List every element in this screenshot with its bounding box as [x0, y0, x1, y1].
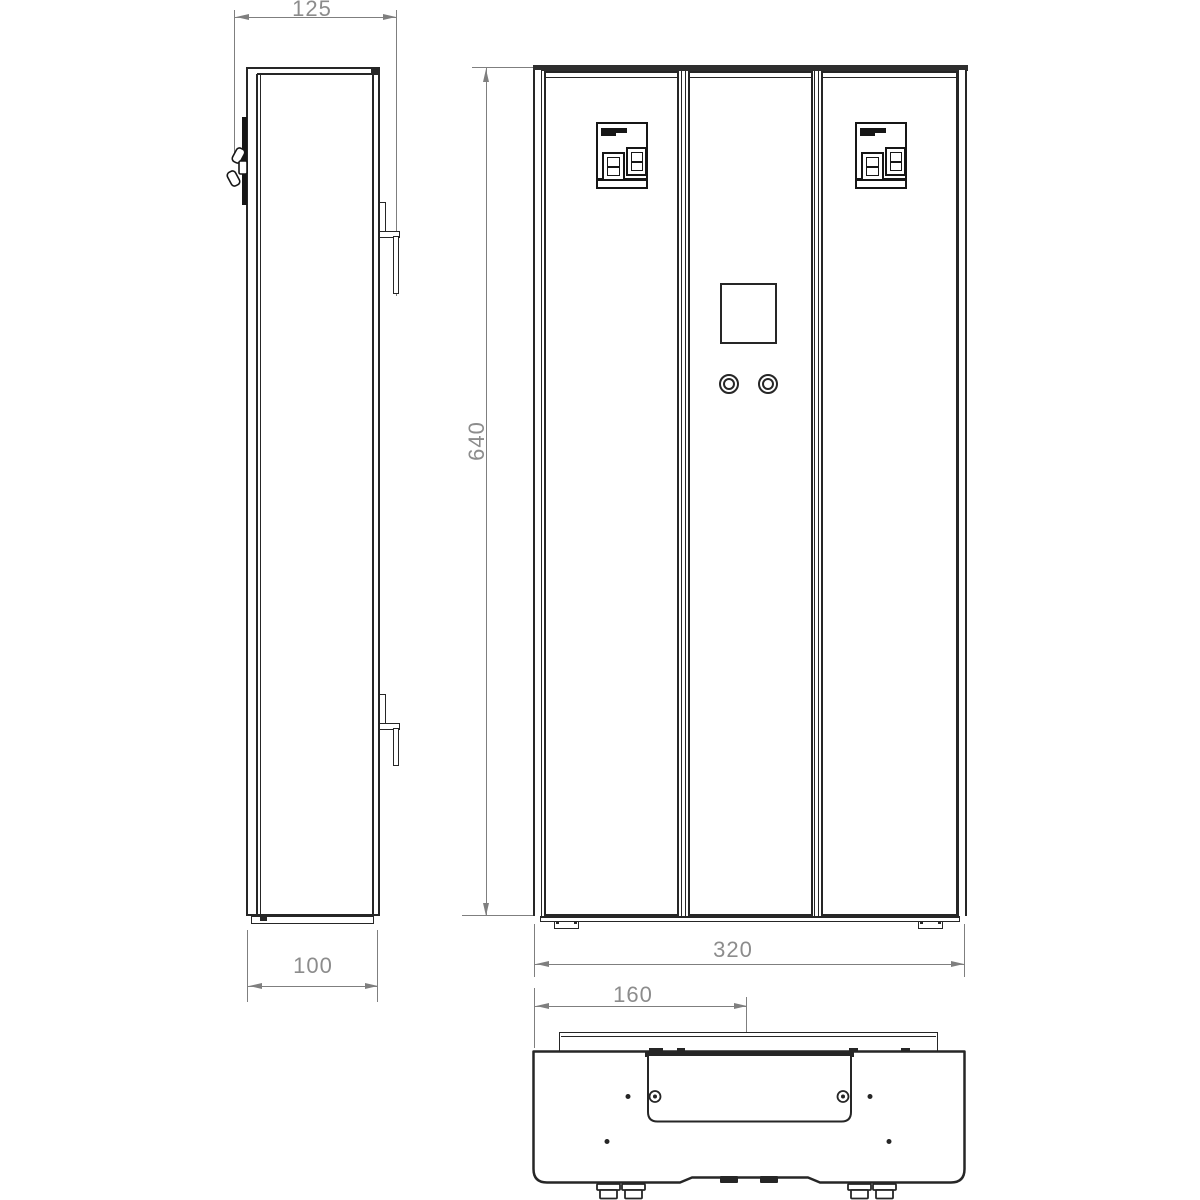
dimension-label-width: 320 — [703, 939, 763, 961]
pilot-hole — [887, 1139, 892, 1144]
pilot-hole — [868, 1094, 873, 1099]
bottom-body — [532, 1050, 966, 1200]
pilot-hole — [605, 1139, 610, 1144]
mounting-tab — [760, 1176, 778, 1183]
panel-gap — [681, 71, 686, 916]
control-knob-inner — [762, 378, 774, 390]
switch-toggle — [631, 161, 643, 163]
cable-gland — [873, 1184, 896, 1199]
breaker-panel — [855, 122, 907, 189]
gland-body — [851, 1190, 868, 1199]
front-face-line — [260, 74, 261, 914]
door-panel-center — [688, 71, 813, 916]
panel-top-line — [690, 77, 811, 78]
breaker-switch — [626, 147, 647, 176]
gland-body — [600, 1190, 617, 1199]
switch-toggle — [607, 166, 620, 168]
dim-arrow-left-icon — [249, 983, 262, 989]
front-face-line — [256, 74, 258, 914]
dim-arrow-left-icon — [536, 1003, 549, 1009]
extension-line — [377, 930, 378, 1002]
extension-line — [534, 988, 535, 1048]
key-shank — [239, 161, 247, 174]
top-corner-nub — [371, 69, 379, 74]
mounting-tab — [720, 1176, 738, 1183]
dim-arrow-left-icon — [236, 14, 249, 20]
terminal-cover — [648, 1056, 851, 1122]
cable-gland — [848, 1184, 871, 1199]
side-view-base — [251, 916, 374, 924]
dim-arrow-right-icon — [365, 983, 378, 989]
extension-line — [247, 930, 248, 1002]
extension-line — [964, 924, 965, 977]
foot-mark — [920, 921, 923, 924]
dim-arrow-right-icon — [734, 1003, 747, 1009]
door-panel-right — [821, 71, 958, 916]
breaker-switch — [602, 152, 625, 181]
rating-label — [601, 133, 616, 136]
drawing-canvas: 125 100 — [0, 0, 1200, 1200]
control-knob-inner — [723, 378, 735, 390]
top-cap-line — [257, 73, 378, 75]
wall-bracket-upper-rod — [393, 236, 399, 294]
gland-body — [625, 1190, 642, 1199]
top-cap-bar — [533, 65, 968, 71]
back-wall-line — [372, 74, 374, 914]
panel-top-line — [546, 77, 677, 78]
gland-body — [876, 1190, 893, 1199]
screw-hole-center — [653, 1095, 657, 1099]
dim-arrow-up-icon — [483, 69, 489, 82]
dim-arrow-right-icon — [951, 961, 964, 967]
side-view-body — [246, 67, 380, 916]
panel-top-line — [823, 77, 956, 78]
dimension-line — [535, 964, 965, 965]
breaker-panel — [596, 122, 648, 189]
gland-flange — [873, 1184, 896, 1190]
switch-toggle — [866, 166, 879, 168]
foot-mark — [574, 921, 577, 924]
dimension-label-body-depth: 100 — [283, 955, 343, 977]
door-panel-left — [544, 71, 679, 916]
cable-gland — [597, 1184, 620, 1199]
extension-line — [234, 10, 235, 160]
front-view-base — [540, 916, 960, 922]
gland-flange — [622, 1184, 645, 1190]
dim-arrow-right-icon — [383, 14, 396, 20]
wall-bracket-lower-rod — [393, 728, 399, 766]
dimension-label-height: 640 — [466, 411, 488, 471]
foot-mark — [556, 921, 559, 924]
lock-key — [224, 145, 250, 193]
gland-flange — [848, 1184, 871, 1190]
panel-gap — [814, 71, 819, 916]
pilot-hole — [626, 1094, 631, 1099]
display-window — [720, 283, 777, 344]
side-wall-right — [958, 70, 967, 916]
base-mark — [260, 917, 267, 921]
dimension-line — [486, 68, 487, 916]
foot-mark — [938, 921, 941, 924]
gland-flange — [597, 1184, 620, 1190]
extension-line — [462, 915, 534, 916]
dim-arrow-left-icon — [536, 961, 549, 967]
dimension-label-overall-depth: 125 — [282, 0, 342, 20]
dimension-label-center-offset: 160 — [603, 984, 663, 1006]
dimension-line — [248, 986, 378, 987]
breaker-switch — [861, 152, 884, 181]
screw-hole-center — [841, 1095, 845, 1099]
mounting-plate — [559, 1032, 938, 1052]
breaker-switch — [885, 147, 906, 176]
rating-label — [860, 133, 875, 136]
plate-edge-line — [561, 1036, 936, 1037]
dim-arrow-down-icon — [483, 903, 489, 916]
extension-line — [472, 67, 534, 68]
side-wall-left — [533, 70, 542, 916]
switch-toggle — [890, 161, 902, 163]
extension-line — [534, 924, 535, 977]
cable-gland — [622, 1184, 645, 1199]
